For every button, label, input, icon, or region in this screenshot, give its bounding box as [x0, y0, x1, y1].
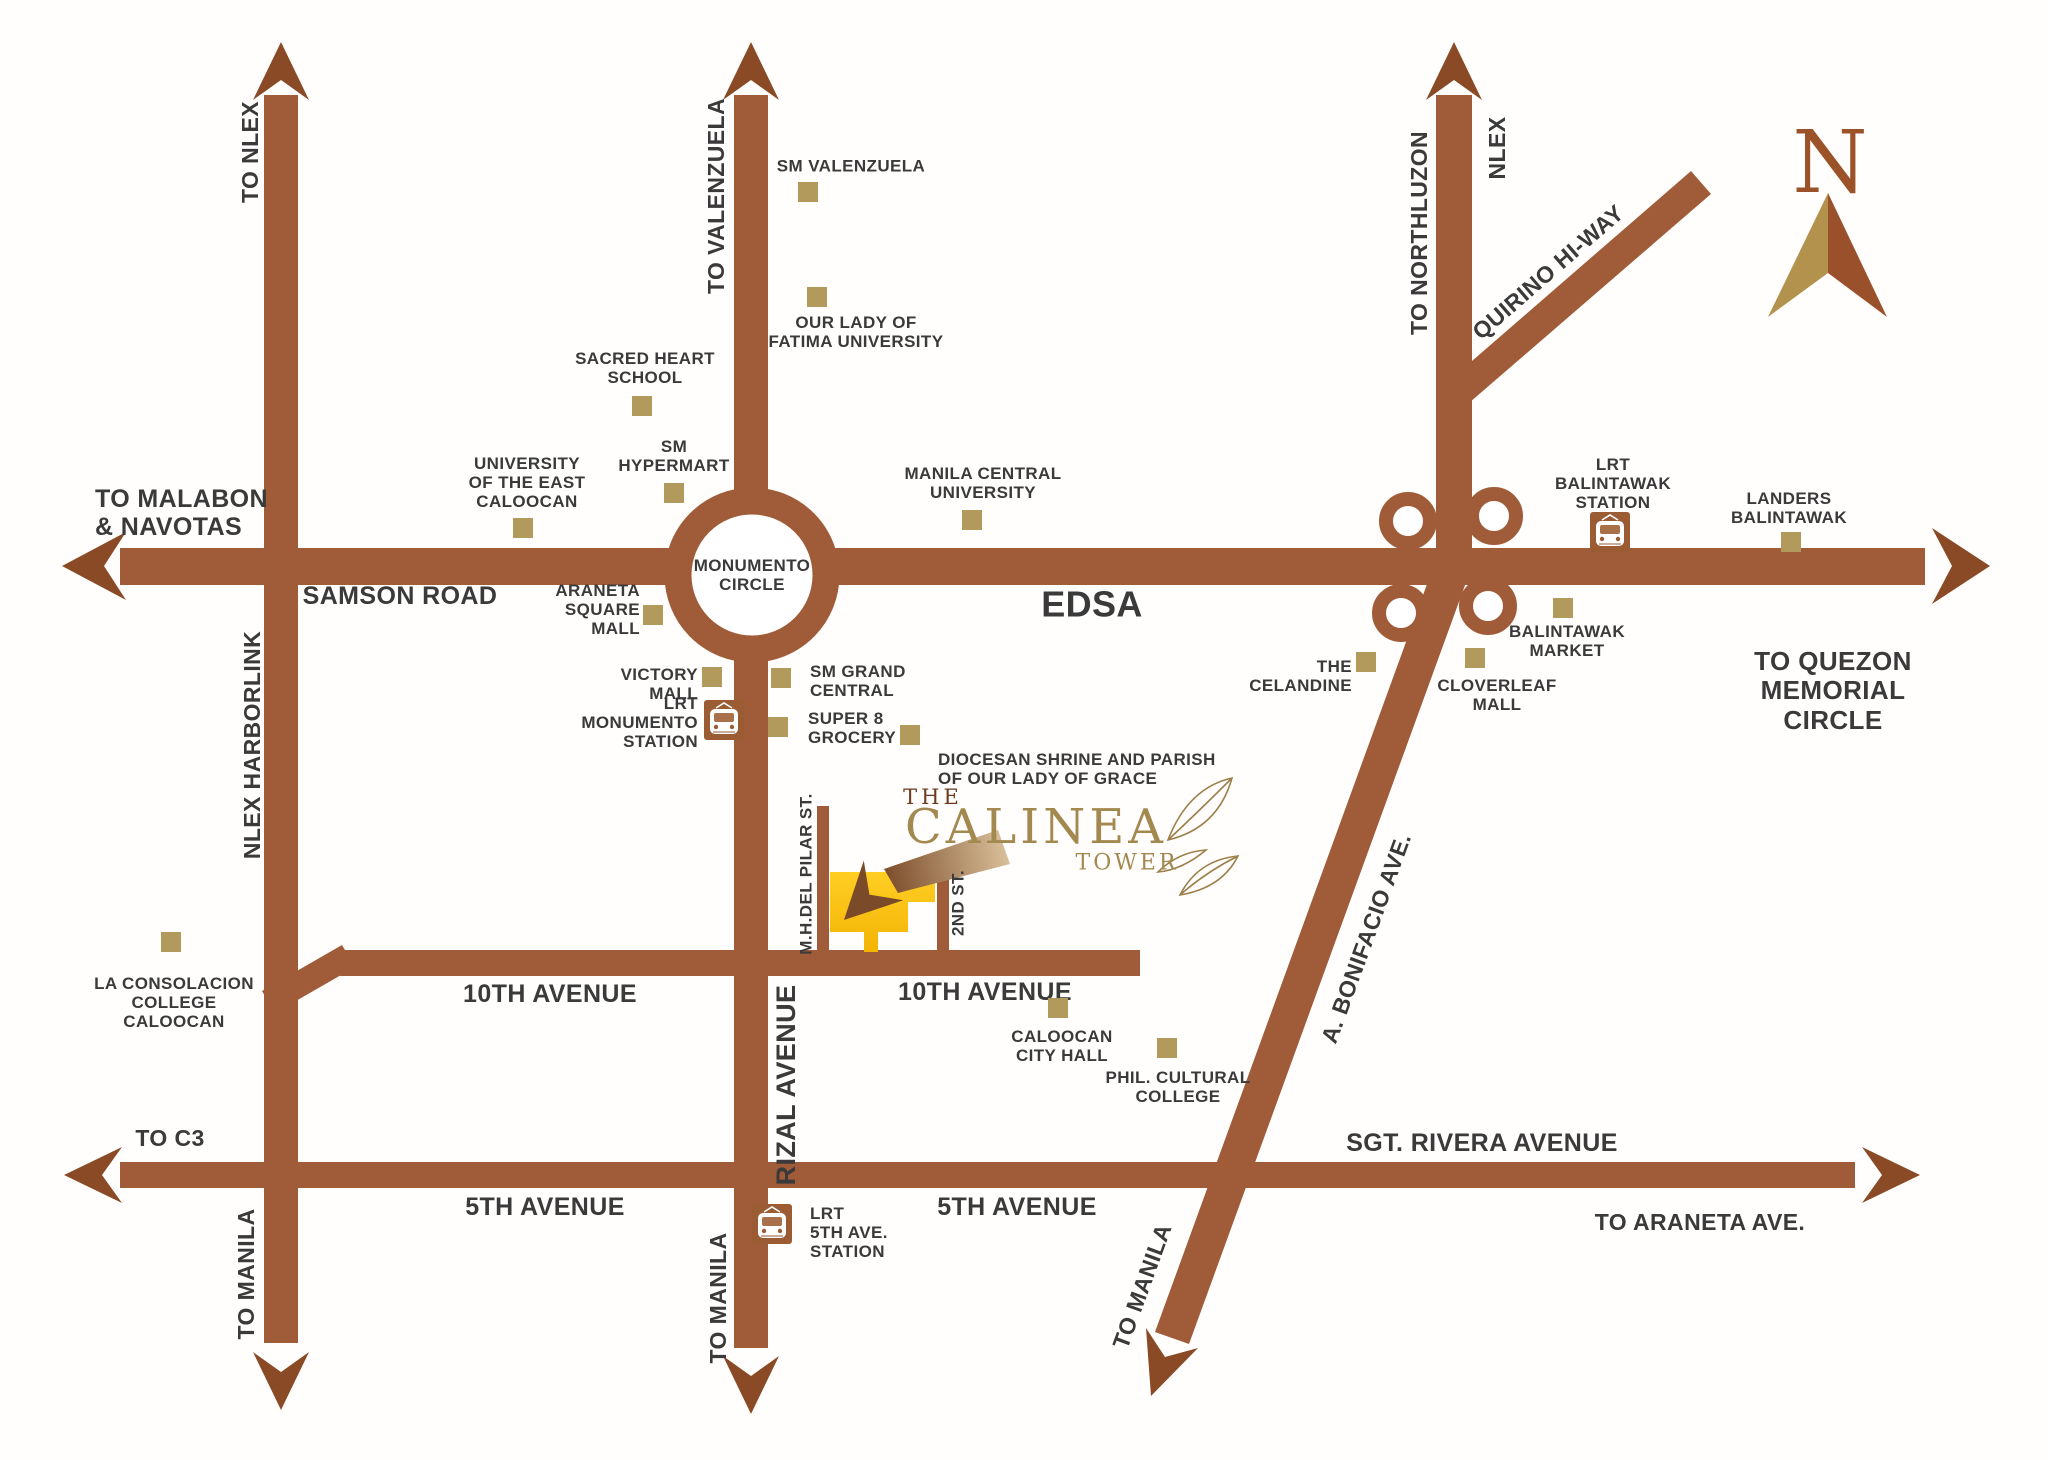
road-label-to-manila-rizal: TO MANILA — [705, 1233, 731, 1364]
lrt-train-icon-lrt-5th-ave-station — [752, 1204, 792, 1244]
poi-marker-sacred-heart-school — [632, 396, 652, 416]
road-label-5th-avenue-east: 5TH AVENUE — [937, 1193, 1097, 1221]
poi-marker-manila-central-university — [962, 510, 982, 530]
road-label-nlex-harborlink: NLEX HARBORLINK — [239, 631, 265, 859]
road-label-to-nlex: TO NLEX — [237, 101, 263, 203]
road-label-to-malabon-navotas: TO MALABON & NAVOTAS — [95, 485, 268, 542]
poi-marker-phil-cultural-college — [1157, 1038, 1177, 1058]
road-label-rizal-avenue: RIZAL AVENUE — [771, 985, 802, 1186]
road-label-to-northluzon: TO NORTHLUZON — [1406, 131, 1432, 335]
poi-label-manila-central-university: MANILA CENTRAL UNIVERSITY — [904, 464, 1061, 502]
road-label-monumento-circle: MONUMENTO CIRCLE — [694, 556, 811, 594]
poi-marker-our-lady-of-fatima-university — [807, 287, 827, 307]
poi-label-phil-cultural-college: PHIL. CULTURAL COLLEGE — [1105, 1068, 1250, 1106]
road-label-to-manila-bonifacio: TO MANILA — [1107, 1220, 1176, 1352]
poi-label-cloverleaf-mall: CLOVERLEAF MALL — [1437, 676, 1556, 714]
poi-label-lrt-balintawak-station: LRT BALINTAWAK STATION — [1555, 455, 1671, 513]
road-label-10th-avenue-east: 10TH AVENUE — [898, 978, 1072, 1006]
poi-marker-cloverleaf-mall — [1465, 648, 1485, 668]
poi-marker-victory-mall — [702, 667, 722, 687]
poi-label-lrt-5th-ave-station: LRT 5TH AVE. STATION — [810, 1204, 888, 1262]
road-label-mh-del-pilar-st: M.H.DEL PILAR ST. — [796, 793, 815, 954]
poi-marker-araneta-square-mall — [643, 605, 663, 625]
poi-label-araneta-square-mall: ARANETA SQUARE MALL — [555, 581, 640, 639]
road-label-edsa: EDSA — [1041, 585, 1143, 626]
poi-label-caloocan-city-hall: CALOOCAN CITY HALL — [1011, 1027, 1112, 1065]
label-layer: TO NLEXTO VALENZUELATO NORTHLUZONNLEXQUI… — [0, 0, 2048, 1460]
poi-marker-the-celandine — [1356, 652, 1376, 672]
road-label-to-quezon-memorial-circle: TO QUEZON MEMORIAL CIRCLE — [1754, 647, 1912, 735]
poi-label-sm-hypermart: SM HYPERMART — [618, 437, 729, 475]
poi-label-super-8-grocery: SUPER 8 GROCERY — [808, 709, 896, 747]
poi-marker-super-8-grocery — [768, 717, 788, 737]
poi-marker-balintawak-market — [1553, 598, 1573, 618]
poi-marker-university-of-the-east-caloocan — [513, 518, 533, 538]
road-label-sgt-rivera-avenue: SGT. RIVERA AVENUE — [1346, 1129, 1618, 1157]
road-label-samson-road: SAMSON ROAD — [303, 582, 498, 610]
poi-label-sacred-heart-school: SACRED HEART SCHOOL — [575, 349, 715, 387]
poi-marker-sm-hypermart — [664, 483, 684, 503]
poi-label-sm-valenzuela: SM VALENZUELA — [777, 156, 925, 175]
poi-marker-sm-valenzuela — [798, 182, 818, 202]
poi-label-la-consolacion-college-caloocan: LA CONSOLACION COLLEGE CALOOCAN — [94, 974, 254, 1032]
poi-label-landers-balintawak: LANDERS BALINTAWAK — [1731, 489, 1847, 527]
road-label-to-manila-harborlink: TO MANILA — [233, 1209, 259, 1340]
poi-marker-la-consolacion-college-caloocan — [161, 932, 181, 952]
vicinity-map: N THE CALINEA TOWER TO NLEXTO VALENZUELA… — [0, 0, 2048, 1460]
road-label-to-c3: TO C3 — [135, 1125, 204, 1151]
poi-label-the-celandine: THE CELANDINE — [1249, 657, 1352, 695]
road-label-to-araneta-ave: TO ARANETA AVE. — [1595, 1209, 1805, 1235]
poi-label-balintawak-market: BALINTAWAK MARKET — [1509, 622, 1625, 660]
poi-label-our-lady-of-fatima-university: OUR LADY OF FATIMA UNIVERSITY — [769, 313, 944, 351]
poi-marker-caloocan-city-hall — [1048, 998, 1068, 1018]
poi-marker-diocesan-shrine — [900, 725, 920, 745]
road-label-5th-avenue-west: 5TH AVENUE — [465, 1193, 625, 1221]
road-label-to-valenzuela: TO VALENZUELA — [703, 98, 729, 294]
poi-label-diocesan-shrine: DIOCESAN SHRINE AND PARISH OF OUR LADY O… — [938, 750, 1216, 788]
road-label-quirino-hiway: QUIRINO HI-WAY — [1467, 199, 1628, 344]
road-label-a-bonifacio-ave: A. BONIFACIO AVE. — [1316, 829, 1416, 1046]
poi-marker-landers-balintawak — [1781, 532, 1801, 552]
lrt-train-icon-lrt-balintawak-station — [1590, 512, 1630, 552]
road-label-2nd-st: 2ND ST. — [948, 870, 967, 936]
poi-label-sm-grand-central: SM GRAND CENTRAL — [810, 662, 906, 700]
poi-label-university-of-the-east-caloocan: UNIVERSITY OF THE EAST CALOOCAN — [469, 454, 586, 512]
road-label-10th-avenue-west: 10TH AVENUE — [463, 980, 637, 1008]
poi-label-lrt-monumento-station: LRT MONUMENTO STATION — [581, 694, 698, 752]
poi-marker-sm-grand-central — [771, 668, 791, 688]
lrt-train-icon-lrt-monumento-station — [704, 700, 744, 740]
road-label-nlex: NLEX — [1484, 117, 1510, 180]
